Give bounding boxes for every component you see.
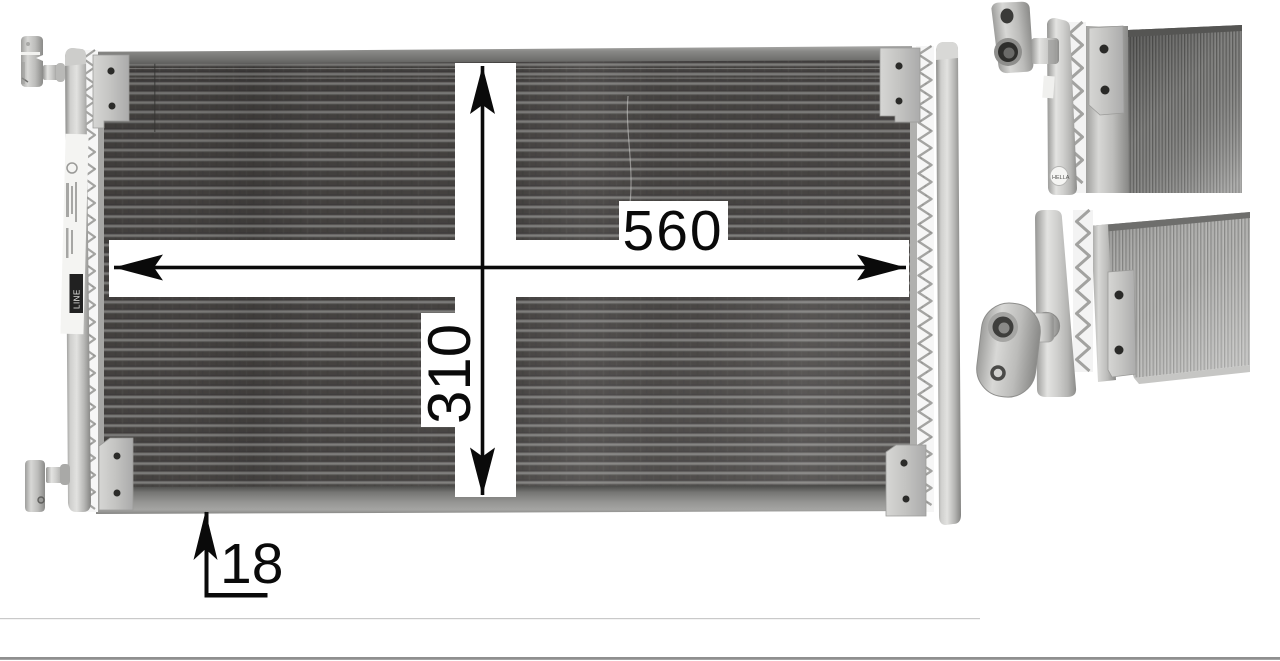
- svg-text:LINE: LINE: [73, 289, 82, 309]
- svg-text:560: 560: [623, 199, 724, 263]
- svg-text:310: 310: [416, 324, 483, 424]
- svg-text:18: 18: [220, 532, 283, 596]
- svg-text:HELLA: HELLA: [1052, 175, 1070, 181]
